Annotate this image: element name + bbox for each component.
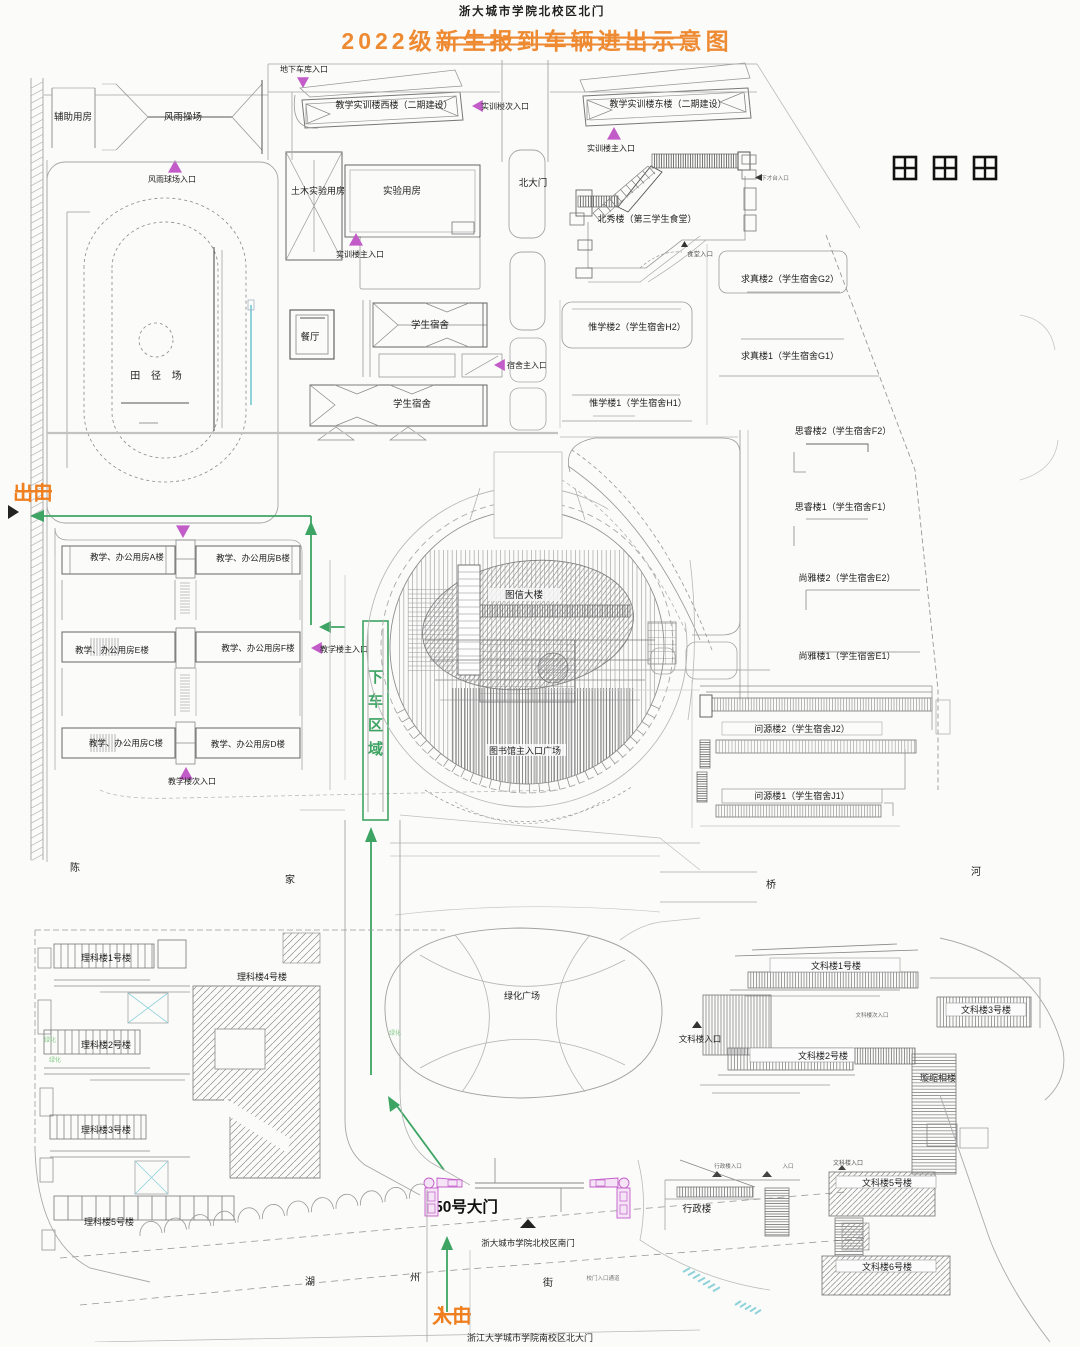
svg-text:尚雅楼2（学生宿舍E2）: 尚雅楼2（学生宿舍E2） xyxy=(798,572,895,583)
svg-text:入口: 入口 xyxy=(782,1163,793,1170)
svg-text:求真楼1（学生宿舍G1）: 求真楼1（学生宿舍G1） xyxy=(741,350,839,361)
svg-text:学生宿舍: 学生宿舍 xyxy=(393,398,432,410)
svg-text:教学实训楼西楼（二期建设）: 教学实训楼西楼（二期建设） xyxy=(335,99,452,110)
svg-text:文科楼次入口: 文科楼次入口 xyxy=(855,1011,888,1019)
svg-text:风雨操场: 风雨操场 xyxy=(164,111,202,123)
svg-text:教学、办公用房D楼: 教学、办公用房D楼 xyxy=(211,739,286,749)
svg-text:教学、办公用房C楼: 教学、办公用房C楼 xyxy=(89,738,164,748)
svg-text:图书馆主入口广场: 图书馆主入口广场 xyxy=(489,745,561,756)
svg-text:教学、办公用房B楼: 教学、办公用房B楼 xyxy=(216,553,290,563)
svg-text:惟学楼1（学生宿舍H1）: 惟学楼1（学生宿舍H1） xyxy=(589,397,687,408)
svg-text:教学、办公用房A楼: 教学、办公用房A楼 xyxy=(90,552,164,562)
svg-text:实训楼次入口: 实训楼次入口 xyxy=(481,101,529,111)
svg-text:理科楼4号楼: 理科楼4号楼 xyxy=(237,971,287,982)
svg-text:出口: 出口 xyxy=(13,482,53,505)
svg-text:辅助用房: 辅助用房 xyxy=(54,111,92,123)
svg-text:河: 河 xyxy=(971,866,981,878)
svg-text:理科楼5号楼: 理科楼5号楼 xyxy=(84,1216,134,1227)
svg-text:地下车库入口: 地下车库入口 xyxy=(280,64,328,74)
svg-text:绿化: 绿化 xyxy=(389,1029,401,1037)
svg-text:田 径 场: 田 径 场 xyxy=(130,369,186,382)
svg-text:教学实训楼东楼（二期建设）: 教学实训楼东楼（二期建设） xyxy=(609,98,726,109)
svg-text:文科楼6号楼: 文科楼6号楼 xyxy=(862,1261,912,1272)
svg-text:思睿楼1（学生宿舍F1）: 思睿楼1（学生宿舍F1） xyxy=(795,501,892,512)
svg-text:教学、办公用房F楼: 教学、办公用房F楼 xyxy=(221,643,295,653)
svg-text:绿化: 绿化 xyxy=(44,1036,56,1044)
svg-text:行政楼入口: 行政楼入口 xyxy=(714,1162,742,1170)
svg-text:求真楼2（学生宿舍G2）: 求真楼2（学生宿舍G2） xyxy=(741,273,839,284)
svg-text:问源楼2（学生宿舍J2）: 问源楼2（学生宿舍J2） xyxy=(754,723,850,734)
svg-text:街: 街 xyxy=(543,1276,553,1289)
svg-text:50号大门: 50号大门 xyxy=(434,1197,498,1216)
svg-text:下才台入口: 下才台入口 xyxy=(761,174,789,182)
svg-text:土木实验用房: 土木实验用房 xyxy=(291,185,345,196)
svg-text:问源楼1（学生宿舍J1）: 问源楼1（学生宿舍J1） xyxy=(754,790,850,801)
svg-text:风雨球场入口: 风雨球场入口 xyxy=(148,174,196,184)
svg-text:2022级新生报到车辆进出示意图: 2022级新生报到车辆进出示意图 xyxy=(341,28,732,54)
svg-text:湖: 湖 xyxy=(305,1276,315,1288)
svg-text:教学楼次入口: 教学楼次入口 xyxy=(168,776,216,786)
svg-text:文科楼入口: 文科楼入口 xyxy=(679,1034,722,1044)
svg-text:食堂入口: 食堂入口 xyxy=(687,249,713,258)
svg-text:学生宿舍: 学生宿舍 xyxy=(411,319,450,331)
svg-text:家: 家 xyxy=(285,873,295,886)
svg-text:浙江大学城市学院南校区北大门: 浙江大学城市学院南校区北大门 xyxy=(467,1332,593,1342)
svg-text:车: 车 xyxy=(368,692,383,710)
svg-text:璇缩相楼: 璇缩相楼 xyxy=(920,1072,956,1083)
svg-text:实训楼主入口: 实训楼主入口 xyxy=(587,143,635,153)
svg-text:理科楼1号楼: 理科楼1号楼 xyxy=(81,952,131,963)
svg-text:入口: 入口 xyxy=(432,1305,472,1328)
svg-text:文科楼3号楼: 文科楼3号楼 xyxy=(961,1004,1011,1015)
svg-text:北大门: 北大门 xyxy=(519,177,548,189)
svg-text:陈: 陈 xyxy=(70,861,80,874)
svg-text:实训楼主入口: 实训楼主入口 xyxy=(336,249,384,259)
svg-text:校门入口通道: 校门入口通道 xyxy=(586,1274,620,1282)
svg-text:理科楼2号楼: 理科楼2号楼 xyxy=(81,1039,131,1050)
svg-text:理科楼3号楼: 理科楼3号楼 xyxy=(81,1124,131,1135)
svg-text:州: 州 xyxy=(410,1272,420,1284)
svg-text:绿化广场: 绿化广场 xyxy=(504,990,540,1001)
svg-text:文科楼2号楼: 文科楼2号楼 xyxy=(798,1050,848,1061)
svg-text:文科楼入口: 文科楼入口 xyxy=(833,1159,863,1167)
svg-text:浙大城市学院北校区南门: 浙大城市学院北校区南门 xyxy=(481,1238,575,1248)
svg-text:实验用房: 实验用房 xyxy=(383,185,421,197)
svg-text:餐厅: 餐厅 xyxy=(300,331,320,343)
svg-text:惟学楼2（学生宿舍H2）: 惟学楼2（学生宿舍H2） xyxy=(588,321,686,332)
svg-text:教学楼主入口: 教学楼主入口 xyxy=(320,644,368,654)
svg-text:域: 域 xyxy=(368,740,383,758)
svg-text:桥: 桥 xyxy=(766,879,776,891)
svg-text:北秀楼（第三学生食堂）: 北秀楼（第三学生食堂） xyxy=(597,213,696,224)
svg-text:浙大城市学院北校区北门: 浙大城市学院北校区北门 xyxy=(459,4,605,18)
svg-text:宿舍主入口: 宿舍主入口 xyxy=(507,360,547,370)
svg-text:思睿楼2（学生宿舍F2）: 思睿楼2（学生宿舍F2） xyxy=(795,425,892,436)
svg-text:绿化: 绿化 xyxy=(49,1056,61,1064)
svg-text:教学、办公用房E楼: 教学、办公用房E楼 xyxy=(75,645,149,655)
svg-text:文科楼5号楼: 文科楼5号楼 xyxy=(862,1177,912,1188)
svg-text:区: 区 xyxy=(368,717,383,734)
svg-text:图信大楼: 图信大楼 xyxy=(505,589,544,601)
svg-text:行政楼: 行政楼 xyxy=(683,1203,712,1215)
svg-text:文科楼1号楼: 文科楼1号楼 xyxy=(811,960,861,971)
